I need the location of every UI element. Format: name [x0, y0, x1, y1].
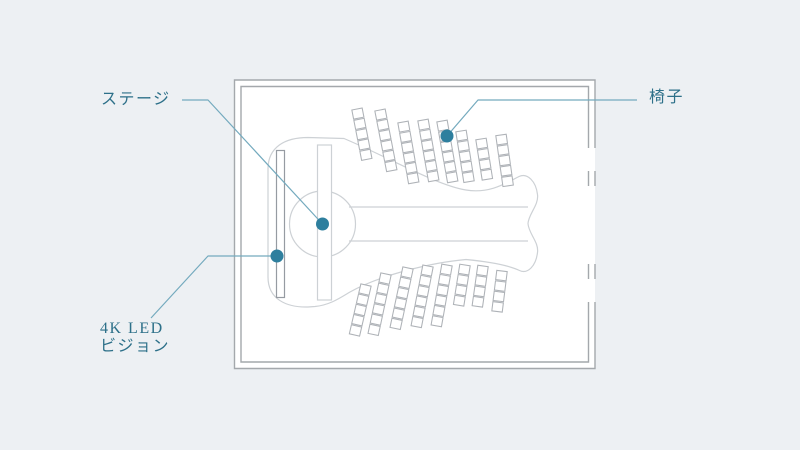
chair	[352, 108, 364, 119]
led-screen	[277, 151, 285, 298]
stage-label: ステージ	[101, 91, 171, 109]
chair	[403, 152, 415, 163]
chair	[502, 176, 514, 187]
chair	[419, 275, 431, 286]
chair	[497, 145, 509, 156]
chair	[354, 118, 366, 129]
chair	[354, 304, 366, 315]
chair	[427, 171, 439, 182]
chair	[418, 119, 430, 130]
chair	[375, 293, 387, 304]
chair	[477, 149, 489, 160]
chair	[431, 316, 443, 327]
chair	[420, 129, 432, 140]
chair	[462, 172, 474, 183]
chair	[496, 270, 508, 281]
chair	[359, 284, 371, 295]
chair	[421, 140, 433, 151]
chair	[383, 150, 395, 161]
chair	[477, 265, 489, 276]
chair	[475, 276, 487, 287]
chair	[413, 306, 425, 317]
chair	[397, 287, 409, 298]
chair	[455, 285, 467, 296]
chair	[492, 302, 504, 313]
chair	[500, 165, 512, 176]
led-marker-dot	[271, 250, 284, 263]
chair	[421, 265, 433, 276]
chair	[411, 317, 423, 328]
chair	[375, 109, 387, 120]
chair	[437, 285, 449, 296]
chair	[442, 151, 454, 162]
chair	[401, 267, 413, 278]
chair	[481, 169, 493, 180]
chair	[381, 140, 393, 151]
chair	[461, 161, 473, 172]
chair	[394, 298, 406, 309]
chair	[479, 159, 491, 170]
chair	[496, 134, 508, 145]
chair	[423, 150, 435, 161]
chair	[433, 305, 445, 316]
chair	[379, 130, 391, 141]
chair	[457, 141, 469, 152]
chair	[390, 318, 402, 329]
chair	[392, 308, 404, 319]
chair	[474, 286, 486, 297]
chair	[437, 120, 449, 131]
floor-plan-drawing	[0, 0, 800, 450]
chair	[352, 315, 364, 326]
venue-floor-plan: ステージ 椅子 4K LED ビジョン	[0, 0, 800, 450]
chair	[379, 273, 391, 284]
chair	[438, 274, 450, 285]
chair	[459, 151, 471, 162]
chair-label: 椅子	[649, 89, 684, 107]
chair	[457, 275, 469, 286]
chair	[415, 296, 427, 307]
chair	[444, 161, 456, 172]
chair	[435, 295, 447, 306]
chair	[476, 138, 488, 149]
chair	[401, 142, 413, 153]
chair	[398, 121, 410, 132]
chair	[493, 291, 505, 302]
chair	[368, 324, 380, 335]
chair	[385, 161, 397, 172]
stage-marker-dot	[316, 218, 329, 231]
chair	[499, 155, 511, 166]
chair-marker-dot	[441, 130, 454, 143]
chair	[405, 162, 417, 173]
chair	[440, 264, 452, 275]
chair	[377, 119, 389, 130]
chair	[458, 264, 470, 275]
chair	[360, 149, 372, 160]
chair	[453, 295, 465, 306]
chair	[425, 160, 437, 171]
chair	[356, 294, 368, 305]
chair	[349, 325, 361, 336]
chair	[494, 281, 506, 292]
chair	[399, 277, 411, 288]
chair	[400, 131, 412, 142]
chair	[356, 129, 368, 140]
chair	[372, 304, 384, 315]
chair	[358, 139, 370, 150]
chair	[446, 172, 458, 183]
led-vision-label: 4K LED ビジョン	[100, 320, 170, 356]
chair	[377, 283, 389, 294]
chair	[456, 130, 468, 141]
chair	[417, 286, 429, 297]
chair	[407, 173, 419, 184]
chair	[370, 314, 382, 325]
chair	[472, 296, 484, 307]
